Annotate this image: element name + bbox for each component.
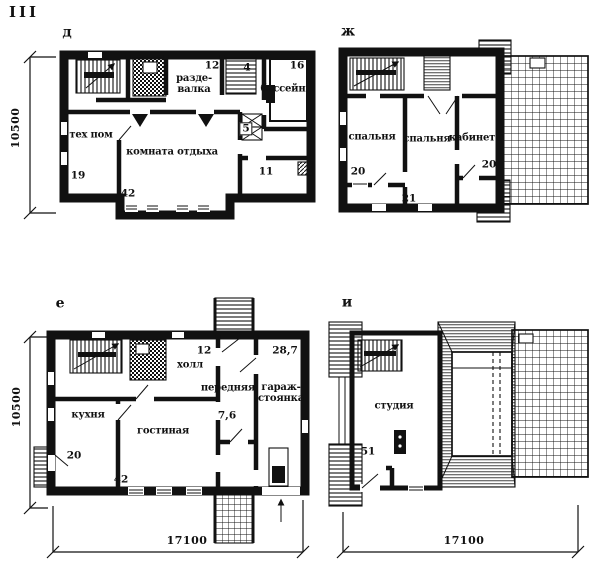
area-number: 19 (71, 170, 86, 181)
plan-zh-letter: ж (341, 24, 355, 39)
room-label-spalnya: спальня (403, 135, 450, 146)
floor-plan-sheet: III д ж е и 12 разде- валка 4 16 бассейн… (0, 0, 600, 583)
area-number: 20 (482, 159, 497, 170)
stair-icon (215, 493, 253, 543)
room-label-garazh: гараж- стоянка (258, 383, 304, 405)
area-number: 21 (402, 193, 417, 204)
stove-icon (394, 430, 406, 454)
area-number: 42 (121, 188, 136, 199)
area-number: 42 (114, 474, 129, 485)
room-label-gostinaya: гостиная (137, 427, 189, 438)
room-label-tekhpom: тех пом (69, 131, 112, 142)
room-label-perednyaya: передняя (201, 384, 255, 395)
dimension-left-bottom: 10500 (11, 387, 23, 428)
room-label-bassein: бассейн (260, 85, 305, 96)
room-label-kukhnya: кухня (71, 411, 104, 422)
dimension-bottom-left: 17100 (167, 535, 208, 547)
room-label-komnata: комната отдыха (126, 148, 218, 159)
area-number: 51 (361, 446, 376, 457)
plan-d-letter: д (62, 25, 71, 40)
room-label-kholl: холл (177, 361, 203, 372)
stair-icon (329, 322, 362, 377)
pergola-grid (503, 56, 588, 204)
area-number: 4 (243, 62, 250, 73)
room-label-spalnya: спальня (348, 133, 395, 144)
plan-i-letter: и (342, 295, 352, 310)
pergola-grid (512, 330, 588, 477)
dimension-left-top: 10500 (10, 108, 22, 149)
room-label-studiya: студия (375, 402, 414, 413)
room-label-razdevalka: разде- валка (176, 74, 212, 96)
area-number: 7,6 (218, 410, 236, 421)
plan-i-linework (329, 322, 588, 506)
shaft-number: 5 (239, 122, 252, 135)
plan-e-letter: е (56, 296, 65, 311)
room-label-kabinet: кабинет (449, 134, 495, 145)
stair-icon (226, 58, 256, 94)
dimension-bottom-right: 17100 (444, 535, 485, 547)
area-number: 20 (351, 166, 366, 177)
area-number: 12 (205, 60, 220, 71)
area-number: 28,7 (272, 345, 298, 356)
stair-icon (329, 444, 362, 506)
area-number: 20 (67, 450, 82, 461)
sheet-title: III (9, 4, 39, 20)
area-number: 16 (290, 60, 305, 71)
stair-icon (215, 298, 253, 335)
area-number: 12 (197, 345, 212, 356)
area-number: 11 (259, 166, 274, 177)
